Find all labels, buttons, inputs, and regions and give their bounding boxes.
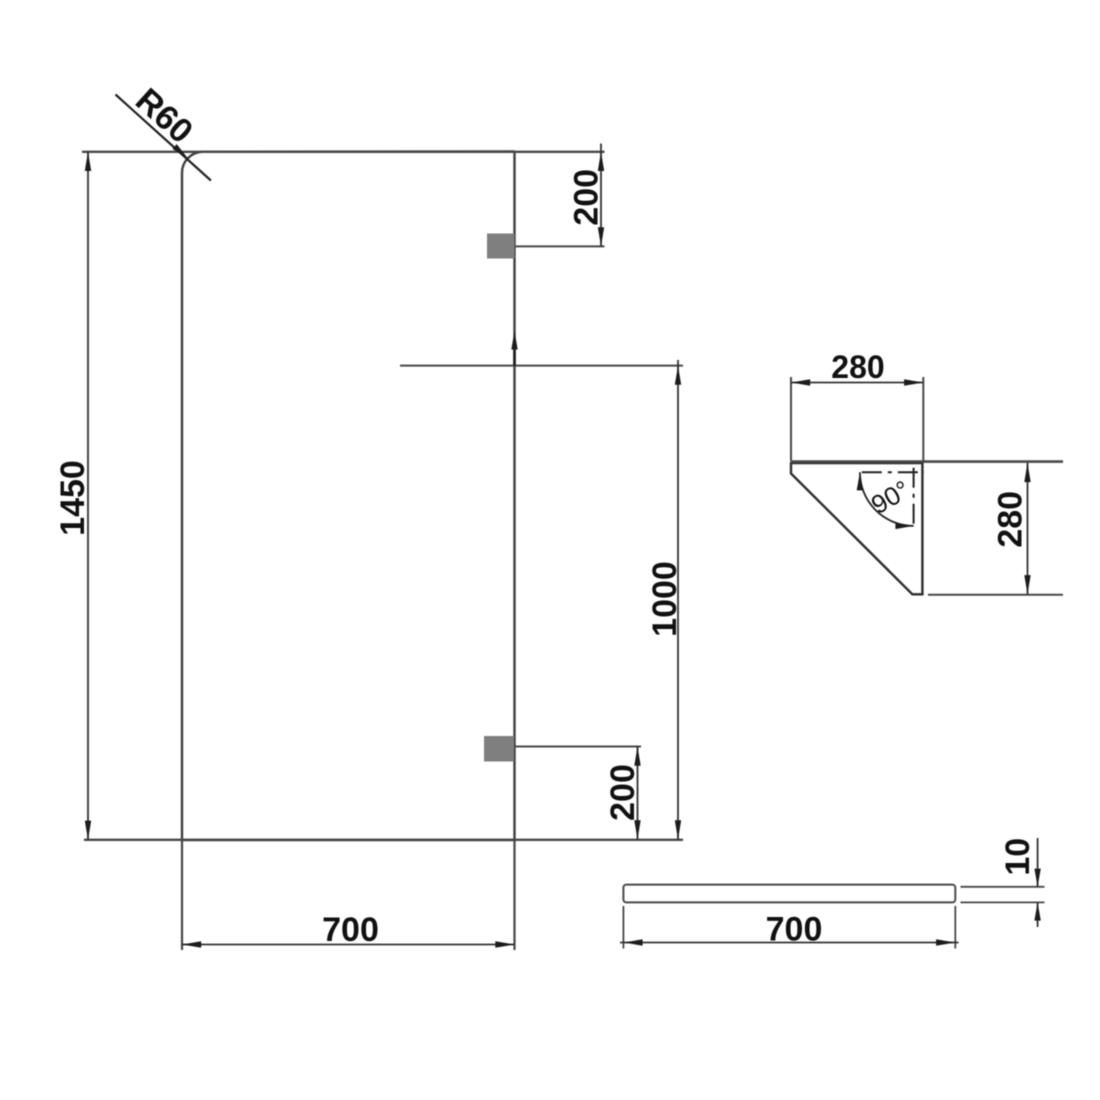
svg-text:200: 200 [604,764,642,821]
svg-text:280: 280 [992,491,1030,548]
svg-text:700: 700 [766,911,823,949]
svg-text:1450: 1450 [54,460,92,536]
svg-text:700: 700 [322,911,379,949]
svg-text:280: 280 [831,349,884,385]
svg-text:200: 200 [568,169,606,226]
svg-text:1000: 1000 [646,561,684,637]
svg-text:10: 10 [999,838,1037,876]
